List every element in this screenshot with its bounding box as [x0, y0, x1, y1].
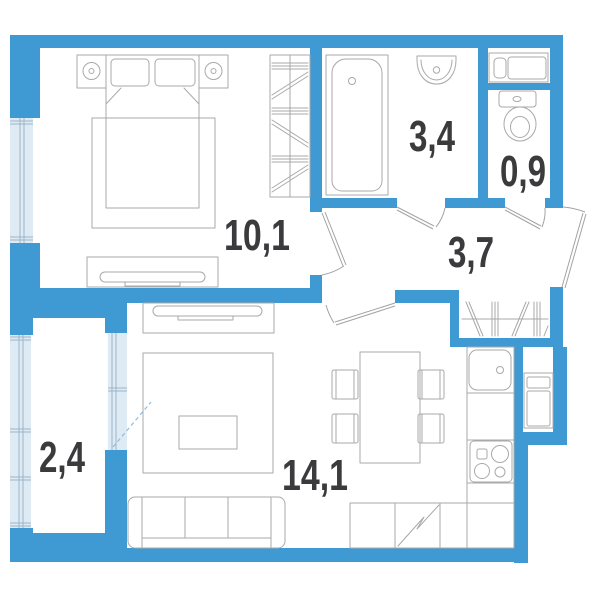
bedroom-window — [10, 118, 33, 243]
balcony-door-window — [108, 333, 151, 450]
wall-top — [10, 35, 563, 48]
wall-balcony-top — [10, 303, 107, 318]
wall-bath-wc-divider — [478, 48, 488, 198]
entrance-door — [562, 207, 586, 288]
chair — [418, 370, 444, 399]
stove-icon — [470, 441, 512, 482]
wall-living-top-right — [395, 290, 459, 303]
wall-partition-upper — [105, 290, 127, 333]
room-label-hallway: 3,7 — [448, 228, 494, 277]
coffee-table — [179, 416, 237, 449]
rug — [143, 353, 273, 473]
dining-table — [360, 352, 420, 463]
wardrobe-icon — [270, 55, 310, 197]
fridge-icon — [524, 373, 553, 428]
wall-partition-lower — [105, 450, 127, 562]
wall-bedroom-bottom — [10, 288, 322, 303]
washing-machine-icon — [489, 53, 548, 82]
wall-bottom-living — [107, 548, 528, 562]
room-label-bathroom: 3,4 — [409, 112, 455, 161]
wall-right-upper — [550, 35, 563, 207]
nightstand-right — [199, 55, 228, 88]
wc-door — [505, 207, 545, 229]
wall-niche-left — [514, 347, 523, 443]
living-room-door — [326, 303, 395, 325]
dining-chairs — [332, 370, 444, 443]
balcony-glazing — [10, 335, 31, 528]
wall-kitchen-right-lower — [514, 443, 528, 563]
wall-left-mid — [10, 243, 40, 290]
living-room-furniture — [128, 303, 444, 548]
wall-balcony-left-top — [10, 318, 33, 335]
wall-bath-bottom-left — [322, 198, 397, 208]
double-bed-icon — [92, 55, 215, 228]
wall-bath-bottom-mid — [445, 198, 505, 208]
kitchen-sink-icon — [469, 350, 511, 390]
floor-plan: 10,1 3,4 0,9 3,7 2,4 14,1 — [0, 0, 600, 600]
nightstand-left — [77, 55, 106, 88]
chair — [332, 370, 358, 399]
wc-fixtures — [489, 53, 548, 141]
toilet-icon — [499, 91, 536, 141]
chair — [332, 414, 358, 443]
room-label-bedroom: 10,1 — [224, 211, 290, 260]
wall-closet-bottom — [459, 338, 550, 347]
wall-right-mid — [550, 287, 563, 347]
room-label-wc: 0,9 — [500, 147, 546, 196]
wall-left-upper — [10, 48, 40, 118]
bedroom-dresser-tv — [87, 257, 218, 287]
bathroom-sink-icon — [417, 56, 456, 84]
tv-stand-living — [143, 303, 274, 333]
bathroom-door — [397, 207, 445, 229]
wall-niche-right — [553, 347, 567, 443]
wall-washer-nook-bottom — [488, 83, 550, 90]
bedroom-door — [322, 212, 346, 275]
cabinet-diagonal-mark — [398, 505, 439, 546]
wall-bedroom-door-stub — [310, 275, 322, 303]
wall-bottom-balcony — [10, 533, 107, 562]
hall-closet-icon — [462, 302, 548, 336]
room-label-living: 14,1 — [282, 451, 348, 500]
sofa-icon — [128, 497, 285, 548]
floor-plan-page: 10,1 3,4 0,9 3,7 2,4 14,1 — [0, 0, 600, 600]
kitchen-counter — [467, 347, 514, 503]
bathtub-icon — [326, 55, 388, 195]
wall-bedroom-right — [310, 48, 322, 212]
chair — [418, 414, 444, 443]
kitchen-cabinets-row — [350, 503, 514, 548]
room-label-balcony: 2,4 — [39, 433, 85, 482]
